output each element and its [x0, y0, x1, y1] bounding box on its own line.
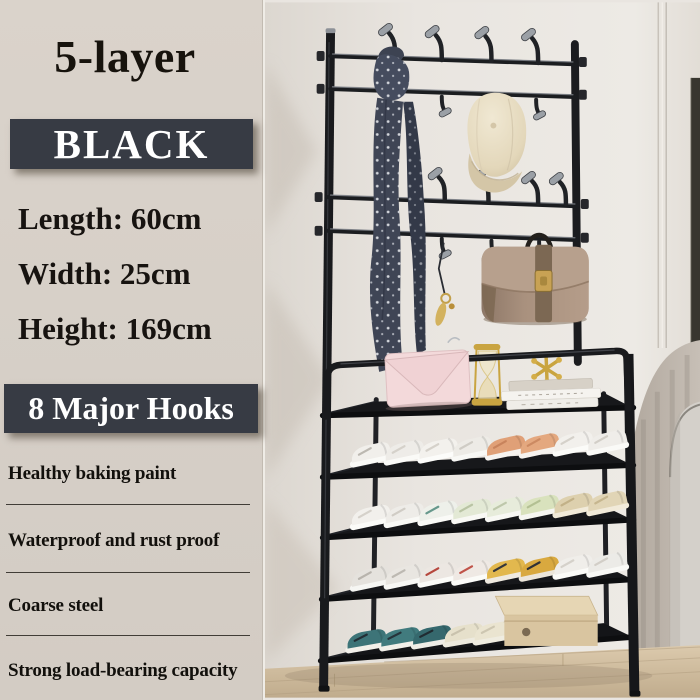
hooks-badge-label: 8 Major Hooks — [28, 390, 234, 426]
books — [501, 378, 601, 410]
spec-length: Length: 60cm — [18, 201, 258, 237]
wall-frame — [691, 78, 700, 352]
divider — [6, 572, 250, 573]
color-badge: BLACK — [10, 119, 253, 169]
shoe-box — [495, 596, 597, 646]
divider — [6, 504, 250, 505]
spec-height: Height: 169cm — [18, 311, 258, 347]
feature-rustproof: Waterproof and rust proof — [8, 530, 258, 552]
feature-steel: Coarse steel — [8, 595, 258, 617]
product-photo — [262, 0, 700, 700]
product-listing-image: 5-layer BLACK Length: 60cm Width: 25cm H… — [0, 0, 700, 700]
handbag — [482, 235, 589, 325]
feature-capacity: Strong load-bearing capacity — [8, 660, 258, 682]
feature-paint: Healthy baking paint — [8, 463, 258, 485]
divider — [6, 635, 250, 636]
color-badge-label: BLACK — [54, 121, 210, 167]
info-panel: 5-layer BLACK Length: 60cm Width: 25cm H… — [0, 0, 263, 700]
spec-width: Width: 25cm — [18, 256, 258, 292]
hooks-badge: 8 Major Hooks — [4, 384, 258, 433]
product-title: 5-layer — [0, 30, 250, 83]
